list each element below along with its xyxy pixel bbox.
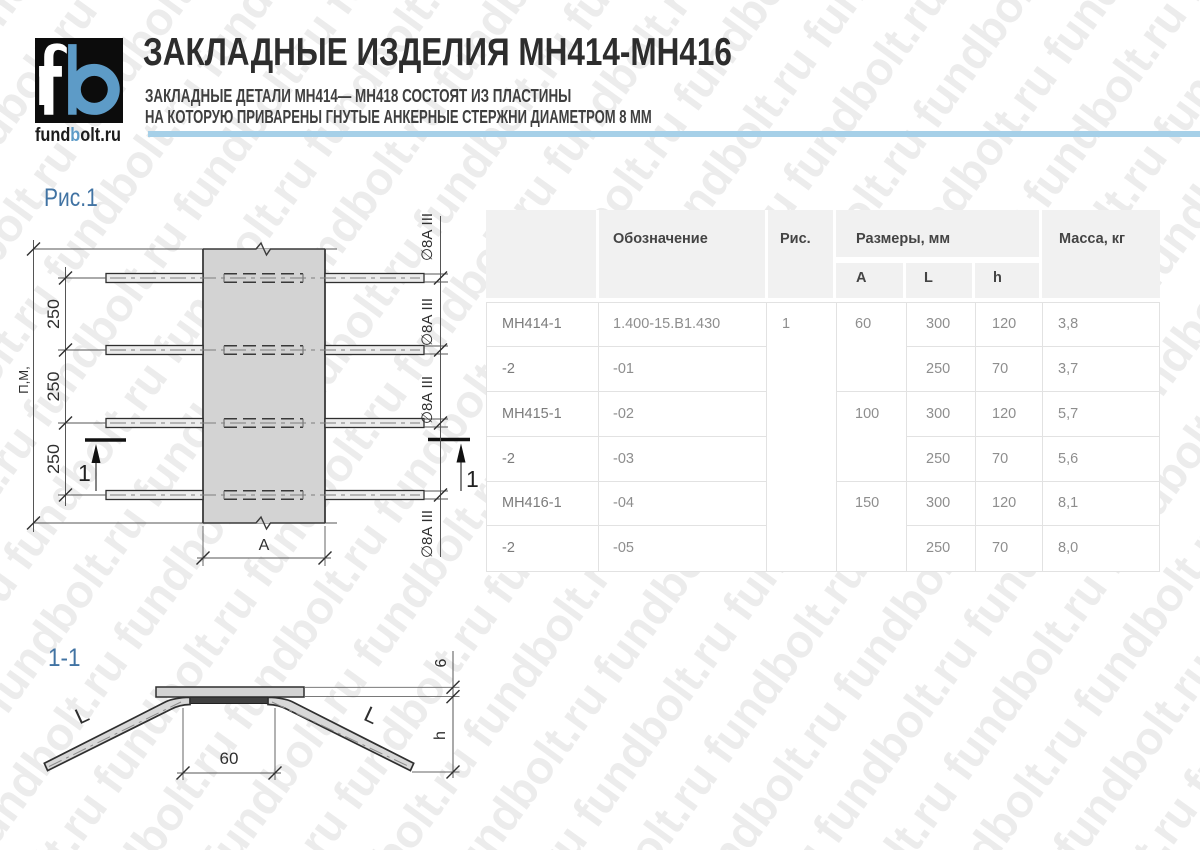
svg-text:∅8А III: ∅8А III (419, 376, 436, 424)
svg-text:∅8А III: ∅8А III (419, 298, 436, 346)
svg-text:∅8А III: ∅8А III (419, 510, 436, 558)
svg-text:∅8А III: ∅8А III (419, 213, 436, 261)
svg-text:250: 250 (44, 372, 63, 402)
svg-text:L: L (71, 701, 93, 729)
svg-text:250: 250 (44, 444, 63, 474)
svg-text:1: 1 (466, 466, 479, 492)
svg-text:П,М,: П,М, (16, 366, 31, 393)
svg-text:1: 1 (78, 460, 91, 486)
svg-text:250: 250 (44, 299, 63, 329)
svg-text:60: 60 (220, 749, 239, 768)
svg-text:h: h (432, 731, 449, 740)
svg-text:L: L (360, 701, 382, 729)
svg-text:А: А (259, 537, 270, 554)
svg-text:6: 6 (433, 658, 450, 667)
